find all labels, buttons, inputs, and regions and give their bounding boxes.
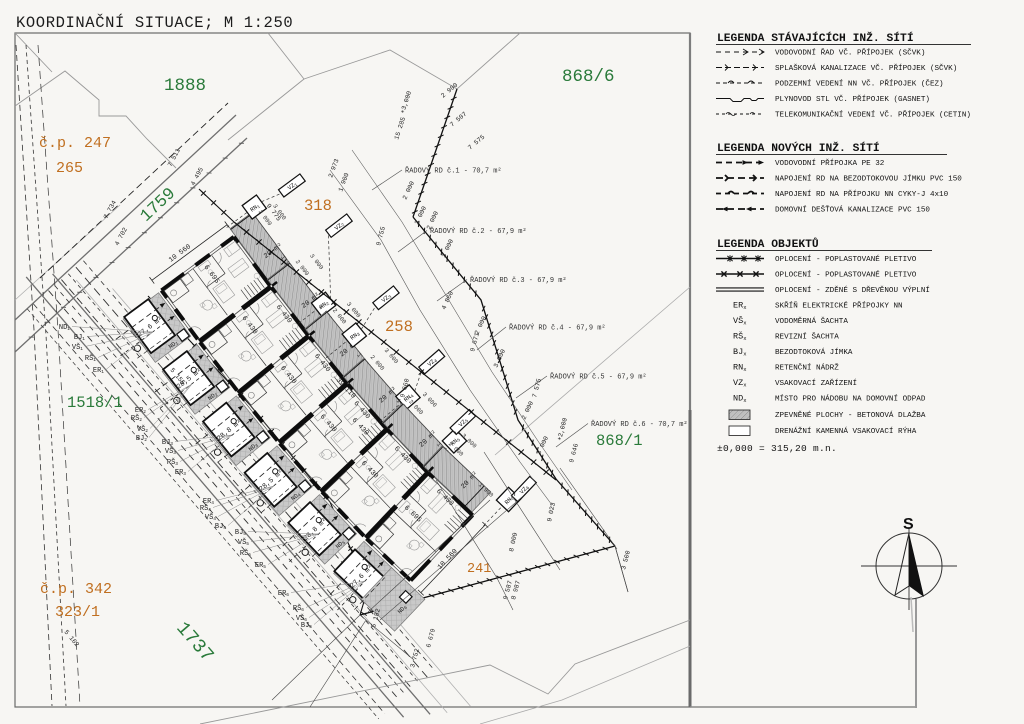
svg-text:LEGENDA STÁVAJÍCÍCH INŽ. SÍTÍ: LEGENDA STÁVAJÍCÍCH INŽ. SÍTÍ <box>717 31 914 45</box>
svg-text:DRENÁŽNÍ KAMENNÁ VSAKOVACÍ RÝH: DRENÁŽNÍ KAMENNÁ VSAKOVACÍ RÝHA <box>775 427 917 436</box>
svg-text:S: S <box>903 516 914 533</box>
svg-text:KOORDINAČNÍ SITUACE; M 1:250: KOORDINAČNÍ SITUACE; M 1:250 <box>16 14 293 32</box>
svg-text:VODOVODNÍ PŘÍPOJKA PE 32: VODOVODNÍ PŘÍPOJKA PE 32 <box>775 159 885 168</box>
svg-text:OPLOCENÍ - POPLASTOVANÉ PLETIV: OPLOCENÍ - POPLASTOVANÉ PLETIVO <box>775 271 917 280</box>
svg-text:ZPEVNĚNÉ PLOCHY - BETONOVÁ DLA: ZPEVNĚNÉ PLOCHY - BETONOVÁ DLAŽBA <box>775 411 926 420</box>
svg-text:1518/1: 1518/1 <box>67 394 123 412</box>
svg-text:č.p. 342: č.p. 342 <box>40 581 112 598</box>
svg-text:RETENČNÍ NÁDRŽ: RETENČNÍ NÁDRŽ <box>775 363 839 373</box>
svg-text:NAPOJENÍ RD NA PŘÍPOJKU NN CYK: NAPOJENÍ RD NA PŘÍPOJKU NN CYKY-J 4x10 <box>775 190 949 199</box>
svg-text:ŘADOVÝ RD č.1 - 70,7 m²: ŘADOVÝ RD č.1 - 70,7 m² <box>405 167 502 176</box>
svg-text:NAPOJENÍ RD NA BEZODTOKOVOU JÍ: NAPOJENÍ RD NA BEZODTOKOVOU JÍMKU PVC 15… <box>775 175 962 184</box>
svg-text:258: 258 <box>385 318 413 336</box>
svg-text:LEGENDA OBJEKTŮ: LEGENDA OBJEKTŮ <box>717 237 819 251</box>
svg-text:ŘADOVÝ RD č.5 - 67,9 m²: ŘADOVÝ RD č.5 - 67,9 m² <box>550 373 647 382</box>
svg-text:VODOMĚRNÁ ŠACHTA: VODOMĚRNÁ ŠACHTA <box>775 316 848 326</box>
svg-text:PLYNOVOD STL VČ. PŘÍPOJEK (GAS: PLYNOVOD STL VČ. PŘÍPOJEK (GASNET) <box>775 94 930 104</box>
svg-text:TELEKOMUNIKAČNÍ VEDENÍ VČ. PŘÍ: TELEKOMUNIKAČNÍ VEDENÍ VČ. PŘÍPOJEK (CET… <box>775 110 971 120</box>
svg-text:1888: 1888 <box>164 76 206 96</box>
svg-text:MÍSTO PRO NÁDOBU NA DOMOVNÍ OD: MÍSTO PRO NÁDOBU NA DOMOVNÍ ODPAD <box>775 395 926 404</box>
svg-text:VSAKOVACÍ ZAŘÍZENÍ: VSAKOVACÍ ZAŘÍZENÍ <box>775 379 857 388</box>
svg-text:SKŘÍŇ ELEKTRICKÉ PŘÍPOJKY NN: SKŘÍŇ ELEKTRICKÉ PŘÍPOJKY NN <box>775 302 903 311</box>
svg-text:OPLOCENÍ - POPLASTOVANÉ PLETIV: OPLOCENÍ - POPLASTOVANÉ PLETIVO <box>775 255 917 264</box>
svg-text:265: 265 <box>56 160 83 177</box>
svg-text:č.p. 247: č.p. 247 <box>39 135 111 152</box>
svg-text:ŘADOVÝ RD č.4 - 67,9 m²: ŘADOVÝ RD č.4 - 67,9 m² <box>509 324 606 333</box>
svg-text:VODOVODNÍ ŘAD VČ. PŘÍPOJEK (SČ: VODOVODNÍ ŘAD VČ. PŘÍPOJEK (SČVK) <box>775 48 925 58</box>
svg-text:BEZODTOKOVÁ JÍMKA: BEZODTOKOVÁ JÍMKA <box>775 348 853 357</box>
svg-text:ŘADOVÝ RD č.3 - 67,9 m²: ŘADOVÝ RD č.3 - 67,9 m² <box>470 276 567 285</box>
svg-text:318: 318 <box>304 197 332 215</box>
svg-text:868/1: 868/1 <box>596 432 643 450</box>
svg-text:ŘADOVÝ RD č.2 - 67,9 m²: ŘADOVÝ RD č.2 - 67,9 m² <box>430 227 527 236</box>
svg-text:ŘADOVÝ RD č.6 - 70,7 m²: ŘADOVÝ RD č.6 - 70,7 m² <box>591 420 688 429</box>
svg-text:SPLAŠKOVÁ KANALIZACE VČ. PŘÍPO: SPLAŠKOVÁ KANALIZACE VČ. PŘÍPOJEK (SČVK) <box>775 63 957 73</box>
svg-text:OPLOCENÍ - ZDĚNÉ S DŘEVĚNOU VÝ: OPLOCENÍ - ZDĚNÉ S DŘEVĚNOU VÝPLNÍ <box>775 286 930 295</box>
svg-text:REVIZNÍ ŠACHTA: REVIZNÍ ŠACHTA <box>775 332 839 342</box>
svg-text:LEGENDA NOVÝCH INŽ. SÍTÍ: LEGENDA NOVÝCH INŽ. SÍTÍ <box>717 141 880 155</box>
svg-text:±0,000 = 315,20 m.n.: ±0,000 = 315,20 m.n. <box>717 443 837 454</box>
svg-text:PODZEMNÍ VEDENÍ NN VČ. PŘÍPOJE: PODZEMNÍ VEDENÍ NN VČ. PŘÍPOJEK (ČEZ) <box>775 79 944 89</box>
svg-text:DOMOVNÍ DEŠŤOVÁ KANALIZACE PVC: DOMOVNÍ DEŠŤOVÁ KANALIZACE PVC 150 <box>775 205 930 215</box>
svg-text:241: 241 <box>467 562 491 577</box>
svg-text:323/1: 323/1 <box>55 604 100 621</box>
svg-text:868/6: 868/6 <box>562 67 615 87</box>
